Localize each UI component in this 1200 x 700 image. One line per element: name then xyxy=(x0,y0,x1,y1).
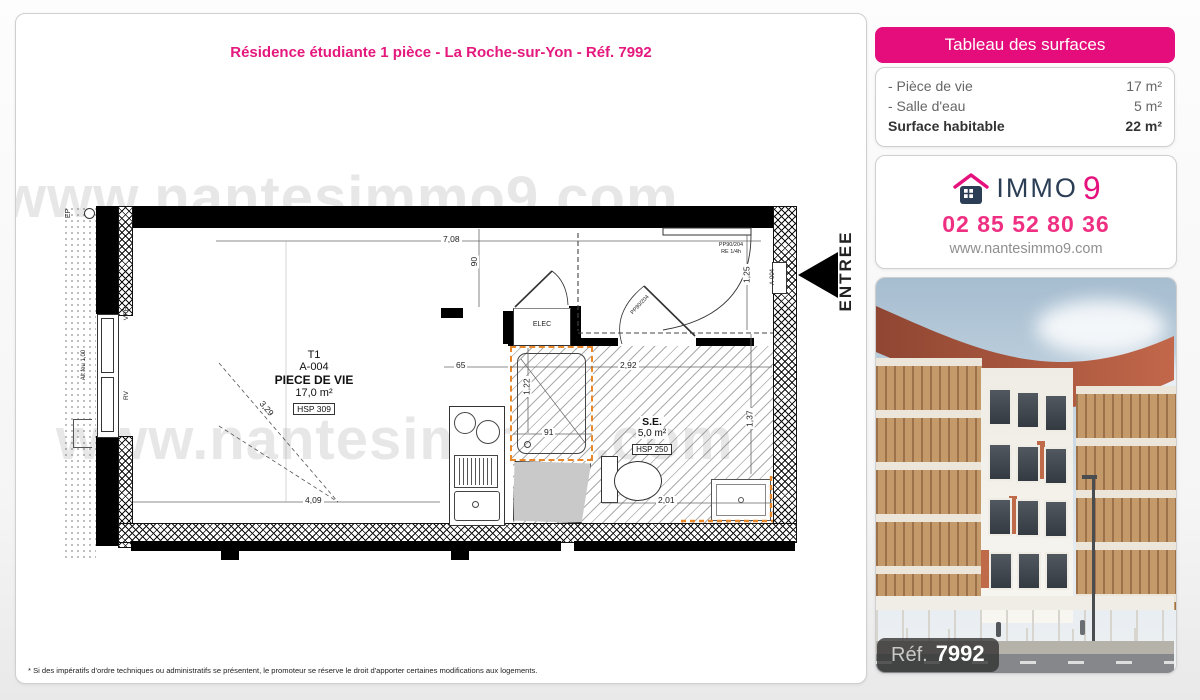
reference-number: 7992 xyxy=(936,641,985,667)
surface-row-value: 5 m² xyxy=(1134,97,1162,117)
entry-door-spec: PP90/204 RE 1/4h xyxy=(708,242,754,255)
bathroom-labels: S.E. 5,0 m² HSP 250 xyxy=(616,416,688,457)
living-room-labels: T1 A-004 PIECE DE VIE 17,0 m² HSP 309 xyxy=(264,349,364,417)
person xyxy=(996,622,1001,637)
surfaces-table-header: Tableau des surfaces xyxy=(875,27,1175,63)
fire-setback-label: Alt feu 1,00 xyxy=(81,335,87,395)
dim-kitchen-gap: 65 xyxy=(454,361,467,370)
plan-lines xyxy=(16,14,866,683)
surface-row-total: Surface habitable 22 m² xyxy=(888,117,1162,137)
brand-text: IMMO xyxy=(996,173,1078,204)
entrance-arrow-icon xyxy=(798,252,838,298)
surface-row-value: 17 m² xyxy=(1126,77,1162,97)
surface-total-label: Surface habitable xyxy=(888,117,1005,137)
room-name: PIECE DE VIE xyxy=(264,373,364,387)
right-balcony-wing xyxy=(1076,386,1176,610)
lamp-head xyxy=(1082,475,1097,479)
reference-label: Réf. xyxy=(891,644,928,667)
surface-row-label: - Pièce de vie xyxy=(888,77,973,97)
bathroom-name: S.E. xyxy=(640,416,664,428)
room-ceiling-height: HSP 309 xyxy=(293,403,335,415)
fascia xyxy=(876,596,1174,610)
surface-row-label: - Salle d'eau xyxy=(888,97,965,117)
room-lot: A-004 xyxy=(264,361,364,373)
dim-shower-depth: 1,22 xyxy=(523,376,532,397)
dim-entry-depth: 90 xyxy=(470,255,479,268)
elec-label: ELEC xyxy=(515,321,569,328)
entrance-label: ENTREE xyxy=(836,206,856,336)
window-label-rv: RV xyxy=(123,391,130,400)
lot-tag: A-004 xyxy=(770,269,776,285)
bathroom-area: 5,0 m² xyxy=(636,428,668,439)
agency-logo: IMMO 9 xyxy=(876,170,1176,207)
surface-row-living: - Pièce de vie 17 m² xyxy=(888,77,1162,97)
lamp-post xyxy=(1092,478,1095,643)
bathroom-ceiling-height: HSP 250 xyxy=(632,444,672,455)
disclaimer-text: * Si des impératifs d'ordre techniques o… xyxy=(28,666,537,675)
agency-website[interactable]: www.nantesimmo9.com xyxy=(876,241,1176,257)
dim-entry-width: 1,25 xyxy=(743,264,752,285)
agency-phone[interactable]: 02 85 52 80 36 xyxy=(876,211,1176,238)
person xyxy=(1080,620,1085,635)
immo9-house-icon xyxy=(951,171,991,207)
surface-row-bathroom: - Salle d'eau 5 m² xyxy=(888,97,1162,117)
lot-tag-box: A-004 xyxy=(772,262,787,294)
dim-bath-length: 2,01 xyxy=(656,496,677,505)
surface-total-value: 22 m² xyxy=(1125,117,1162,137)
building-photo xyxy=(875,277,1177,674)
rainwater-pipe-label: EP xyxy=(65,209,72,218)
window-label-vre: VRE xyxy=(123,307,130,320)
dim-shower-width: 91 xyxy=(542,428,555,437)
surfaces-table: - Pièce de vie 17 m² - Salle d'eau 5 m² … xyxy=(875,67,1175,147)
agency-card: IMMO 9 02 85 52 80 36 www.nantesimmo9.co… xyxy=(875,155,1177,269)
left-balcony-wing xyxy=(876,358,982,610)
dim-total-width: 7,08 xyxy=(441,235,462,244)
room-type: T1 xyxy=(264,349,364,361)
dim-bath-width: 2,92 xyxy=(618,361,639,370)
reference-badge: Réf. 7992 xyxy=(877,638,999,672)
floorplan-card: Résidence étudiante 1 pièce - La Roche-s… xyxy=(15,13,867,684)
brand-digit: 9 xyxy=(1083,170,1101,207)
entry-door-fire-rating: RE 1/4h xyxy=(708,249,754,256)
dim-living-width: 4,09 xyxy=(303,496,324,505)
dim-bath-depth: 1,37 xyxy=(746,408,755,429)
room-area: 17,0 m² xyxy=(264,387,364,399)
entry-door-ref: PP90/204 xyxy=(708,242,754,249)
